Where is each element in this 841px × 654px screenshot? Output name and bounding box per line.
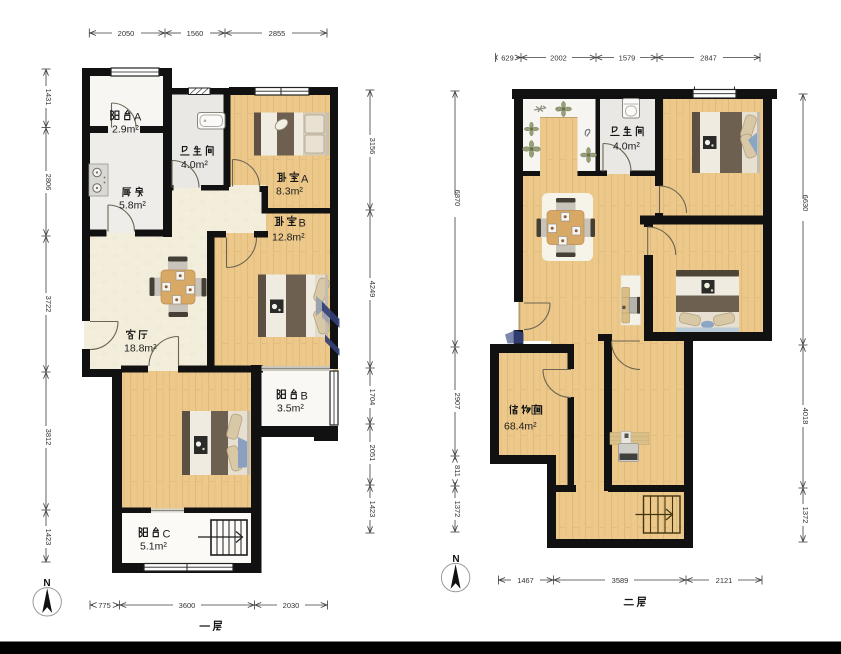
svg-text:775: 775 [98, 601, 111, 610]
svg-text:1423: 1423 [368, 501, 377, 518]
svg-text:1704: 1704 [368, 389, 377, 406]
svg-text:C: C [163, 529, 171, 541]
svg-text:2847: 2847 [700, 54, 717, 63]
svg-text:3722: 3722 [44, 296, 53, 313]
svg-text:4.0m²: 4.0m² [613, 141, 640, 153]
svg-text:3812: 3812 [44, 429, 53, 446]
svg-text:629: 629 [501, 54, 514, 63]
svg-text:3589: 3589 [612, 576, 629, 585]
svg-text:1560: 1560 [187, 29, 204, 38]
svg-text:A: A [301, 174, 309, 186]
svg-text:A: A [134, 112, 142, 124]
svg-text:2.9m²: 2.9m² [112, 124, 139, 136]
svg-text:4.0m²: 4.0m² [181, 159, 208, 171]
svg-text:2050: 2050 [118, 29, 135, 38]
svg-text:2907: 2907 [453, 393, 462, 410]
svg-text:2030: 2030 [283, 601, 300, 610]
svg-text:6870: 6870 [453, 190, 462, 207]
svg-text:4018: 4018 [801, 408, 810, 425]
svg-text:1467: 1467 [517, 576, 534, 585]
svg-text:3600: 3600 [179, 601, 196, 610]
svg-text:6630: 6630 [801, 195, 810, 212]
svg-text:18.8m²: 18.8m² [124, 343, 157, 355]
svg-text:1431: 1431 [44, 89, 53, 106]
svg-text:12.8m²: 12.8m² [272, 232, 305, 244]
svg-text:1579: 1579 [619, 54, 636, 63]
svg-text:B: B [299, 218, 306, 230]
svg-text:8.3m²: 8.3m² [276, 186, 303, 198]
svg-text:5.8m²: 5.8m² [119, 200, 146, 212]
svg-text:2855: 2855 [269, 29, 286, 38]
svg-text:1372: 1372 [453, 501, 462, 518]
svg-text:5.1m²: 5.1m² [140, 541, 167, 553]
svg-text:68.4m²: 68.4m² [504, 421, 537, 433]
svg-text:1372: 1372 [801, 507, 810, 524]
svg-text:4249: 4249 [368, 281, 377, 298]
svg-text:2806: 2806 [44, 174, 53, 191]
svg-text:3.5m²: 3.5m² [277, 403, 304, 415]
svg-text:B: B [301, 391, 308, 403]
svg-text:2051: 2051 [368, 445, 377, 462]
svg-text:1423: 1423 [44, 529, 53, 546]
svg-text:2002: 2002 [550, 54, 567, 63]
svg-text:3156: 3156 [368, 138, 377, 155]
svg-text:811: 811 [453, 465, 462, 477]
svg-text:2121: 2121 [716, 576, 733, 585]
